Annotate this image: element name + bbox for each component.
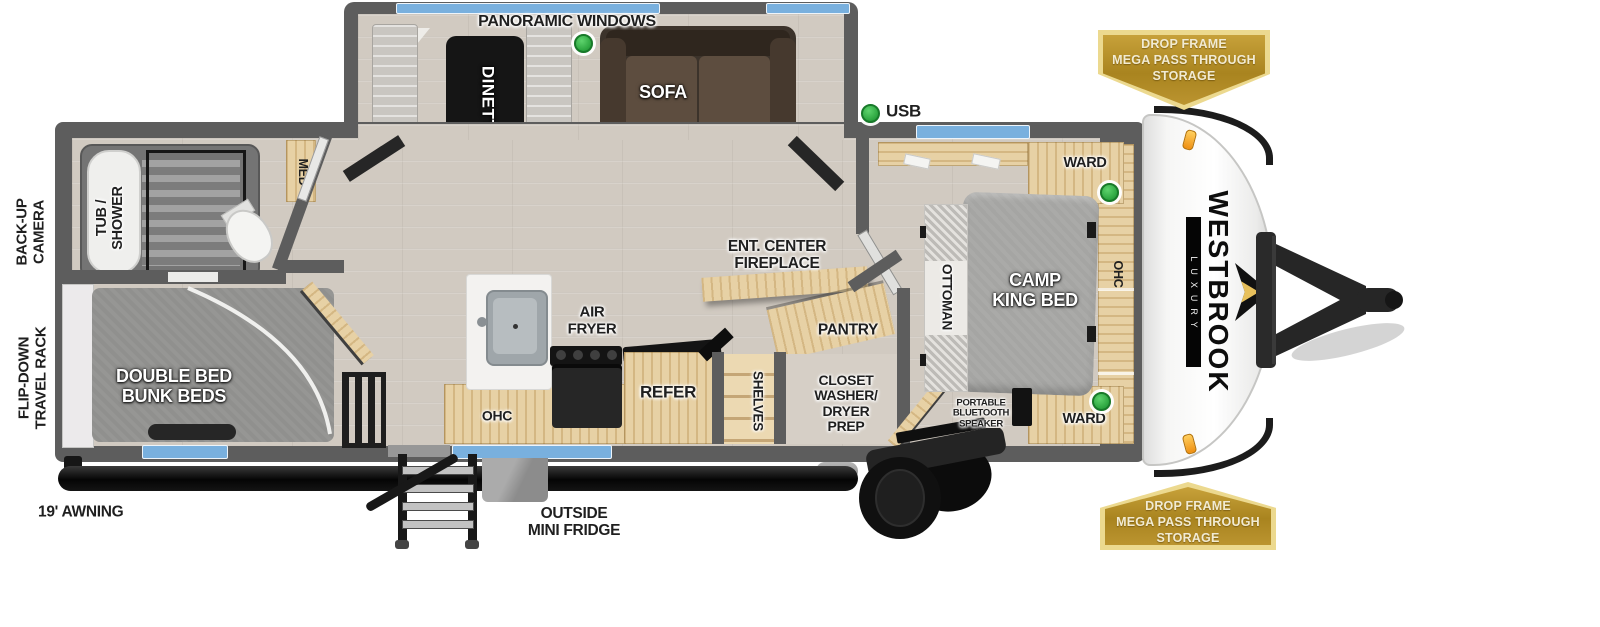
closet-label: CLOSETWASHER/ DRYERPREP bbox=[814, 373, 877, 435]
cabinet-seam bbox=[1098, 288, 1134, 291]
front-cap-trim-top bbox=[1154, 106, 1273, 165]
faucet-icon bbox=[477, 317, 487, 327]
panoramic-windows-label: PANORAMIC WINDOWS bbox=[478, 13, 656, 31]
shelves-label: SHELVES bbox=[750, 371, 765, 431]
usb-label: USB bbox=[886, 103, 921, 122]
hitch-tongue bbox=[1248, 212, 1418, 387]
entry-steps-foot bbox=[395, 540, 409, 549]
bedroom-window bbox=[916, 125, 1030, 139]
ottoman-label: OTTOMAN bbox=[939, 264, 954, 330]
speaker-label: PORTABLEBLUETOOTHSPEAKER bbox=[953, 398, 1009, 429]
shelves-wall-left bbox=[712, 352, 724, 444]
entry-step bbox=[402, 502, 474, 511]
bunk-bed-label: DOUBLE BEDBUNK BEDS bbox=[116, 367, 232, 407]
burner-icon bbox=[607, 350, 617, 360]
burner-icon bbox=[590, 350, 600, 360]
camp-king-bed-label: CAMPKING BED bbox=[992, 271, 1078, 311]
pantry-label: PANTRY bbox=[818, 321, 878, 338]
cabinet-seam bbox=[1098, 372, 1134, 375]
bedroom-wall bbox=[856, 136, 869, 234]
back-up-camera-label: BACK-UPCAMERA bbox=[15, 198, 48, 265]
bunk-ladder bbox=[342, 372, 386, 448]
bluetooth-speaker bbox=[1012, 388, 1032, 426]
sofa-label: SOFA bbox=[639, 83, 687, 103]
panoramic-window-right bbox=[766, 3, 850, 14]
outside-mini-fridge bbox=[482, 458, 548, 502]
storage-badge-bottom: DROP FRAME MEGA PASS THROUGH STORAGE bbox=[1100, 482, 1276, 550]
bath-door bbox=[168, 272, 218, 282]
feature-marker-icon bbox=[861, 104, 880, 123]
ottoman-clip bbox=[920, 354, 926, 366]
sink-drain bbox=[513, 324, 518, 329]
awning-label: 19' AWNING bbox=[38, 503, 123, 520]
kitchen-ohc-label: OHC bbox=[482, 408, 512, 423]
burner-icon bbox=[573, 350, 583, 360]
feature-marker-icon bbox=[1100, 183, 1119, 202]
ottoman-clip bbox=[920, 226, 926, 238]
ent-center-label: ENT. CENTERFIREPLACE bbox=[728, 238, 826, 272]
shelves-wall-right bbox=[774, 352, 786, 444]
feature-marker-icon bbox=[574, 34, 593, 53]
bedroom-ohc-label: OHC bbox=[1110, 261, 1124, 288]
entry-steps-foot bbox=[465, 540, 479, 549]
ottoman-cushion bbox=[925, 335, 967, 391]
wheels bbox=[836, 428, 1016, 553]
sofa-back bbox=[606, 30, 790, 56]
ward-top-label: WARD bbox=[1063, 156, 1106, 172]
slide-out-opening bbox=[358, 124, 844, 140]
front-cap-trim-bottom bbox=[1154, 418, 1273, 477]
burner-icon bbox=[556, 350, 566, 360]
outside-mini-fridge-label: OUTSIDEMINI FRIDGE bbox=[528, 505, 620, 539]
entry-step bbox=[402, 520, 474, 529]
air-fryer-label: AIRFRYER bbox=[568, 305, 617, 338]
refer-label: REFER bbox=[640, 384, 696, 403]
wall-stub bbox=[278, 260, 344, 273]
floorplan-canvas: DINETTE SOFA PANORAMIC WINDOWS TUB /SHOW… bbox=[0, 0, 1600, 627]
ottoman-cushion bbox=[925, 205, 967, 261]
bunk-pillow bbox=[148, 424, 236, 440]
feature-marker-icon bbox=[1092, 392, 1111, 411]
tub-shower-label: TUB /SHOWER bbox=[95, 186, 127, 249]
brand-name: WESTBROOK bbox=[1204, 190, 1232, 393]
bed-hinge bbox=[1087, 222, 1096, 238]
bedroom-ohc-shelf bbox=[878, 142, 1028, 166]
oven bbox=[552, 364, 622, 428]
brand-tagline: LUXURY bbox=[1186, 217, 1201, 367]
bed-hinge bbox=[1087, 326, 1096, 342]
storage-badge-top: DROP FRAME MEGA PASS THROUGH STORAGE bbox=[1098, 30, 1270, 110]
travel-rack-label: FLIP-DOWNTRAVEL RACK bbox=[17, 327, 50, 430]
ward-bottom-label: WARD bbox=[1062, 412, 1105, 428]
